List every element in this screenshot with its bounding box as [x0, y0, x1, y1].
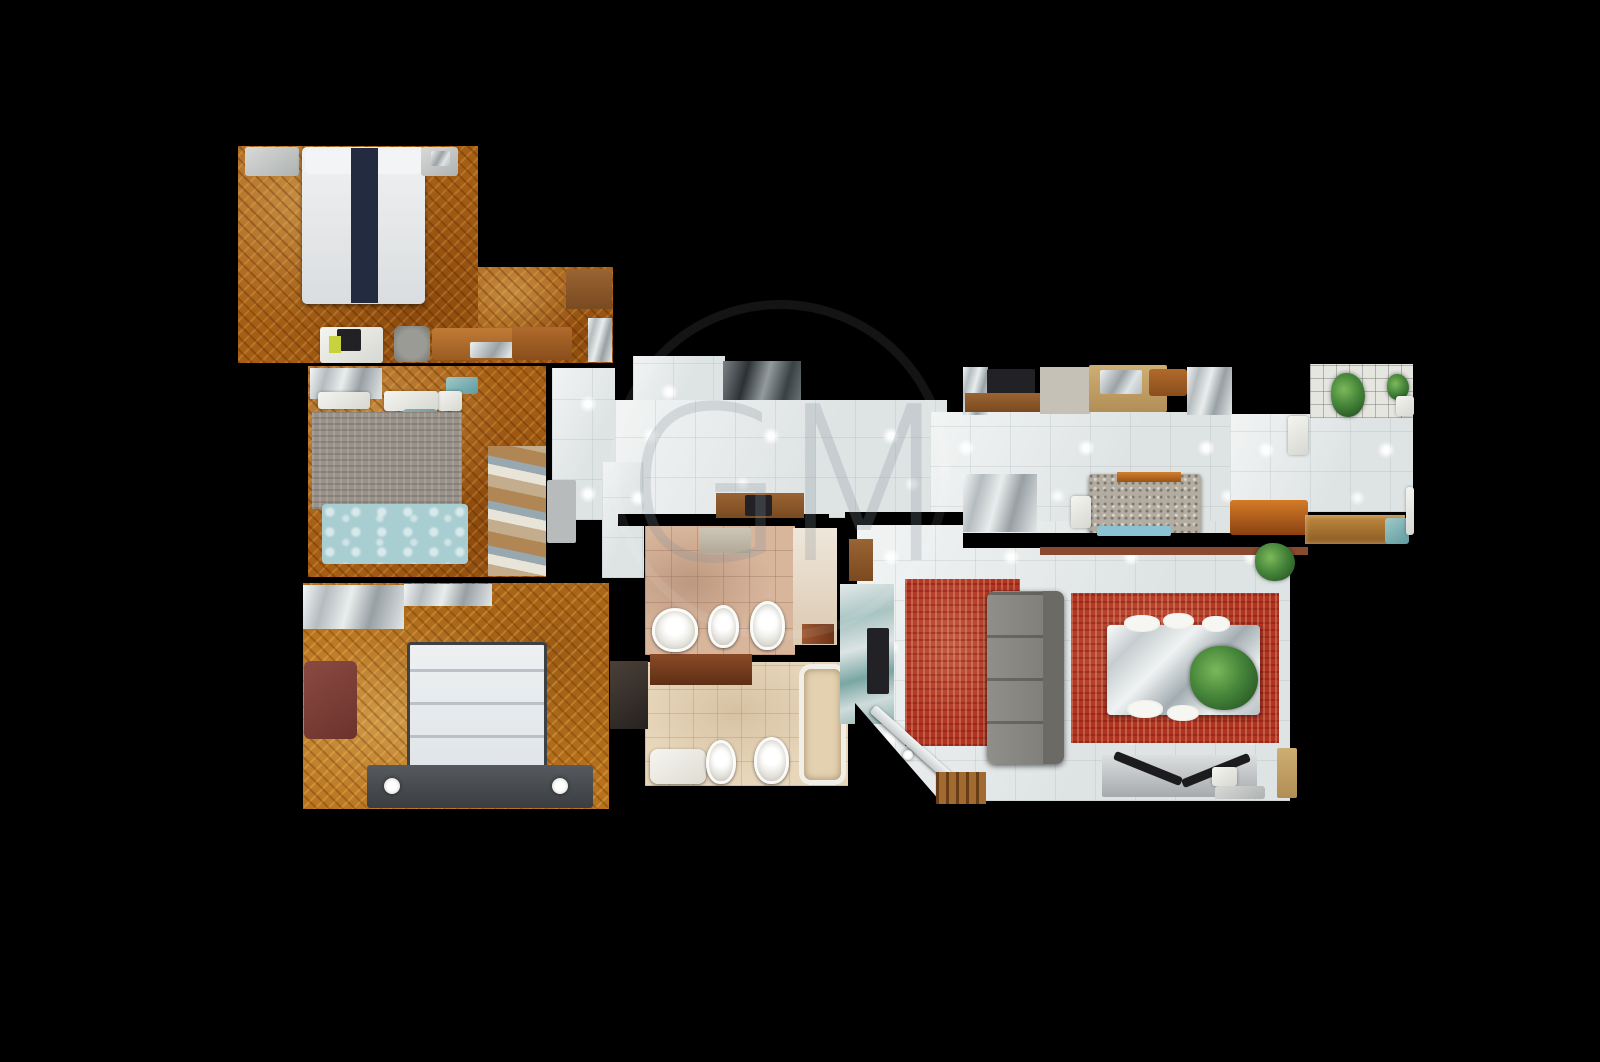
- kitchen-leather-chair: [1149, 369, 1187, 396]
- balcony-plant-large: [1331, 373, 1365, 417]
- floorplan-canvas[interactable]: GM®: [0, 0, 1600, 1062]
- bedroom-1-lamp: [431, 151, 450, 166]
- entry-column: [1288, 416, 1308, 455]
- bathroom-2-bidet: [706, 740, 736, 784]
- kitchen-island-blue-strip: [1097, 526, 1171, 536]
- balcony-box: [1396, 396, 1414, 416]
- bedroom-1-nightstand: [245, 147, 299, 176]
- kitchen-bench-orange: [1230, 500, 1308, 535]
- bedroom-3-lamp-right: [552, 778, 568, 794]
- kitchen-chair-white: [1071, 496, 1091, 528]
- bedroom-1-chair: [394, 326, 430, 362]
- bedroom-3-wardrobe-mirror: [303, 585, 404, 629]
- dining-table-plant: [1190, 646, 1258, 710]
- bedroom-2-bed: [322, 504, 468, 564]
- living-tv: [867, 628, 889, 694]
- kitchen-stools: [1100, 370, 1142, 394]
- bedroom-1-wardrobe-mirror: [588, 318, 612, 362]
- bedroom-1-bed-runner: [351, 148, 378, 303]
- entry-floor[interactable]: [1230, 414, 1413, 512]
- bedroom-1-desk-bag: [329, 336, 341, 353]
- dining-chair-2: [1163, 613, 1194, 629]
- living-wood-steps: [936, 772, 986, 804]
- bedroom-2-desk: [384, 391, 438, 411]
- entry-window-frame: [1406, 487, 1414, 535]
- living-door-knob: [903, 750, 913, 760]
- bedroom-2-cabinet: [438, 391, 462, 411]
- bedroom-3-armchair: [304, 661, 357, 739]
- watermark-registered-icon: ®: [934, 460, 954, 480]
- bedroom-2-closet: [488, 446, 546, 576]
- bedroom-3-lamp-left: [384, 778, 400, 794]
- kitchen-sink-counter: [1187, 367, 1232, 415]
- kitchen-counter-mid: [1040, 367, 1090, 414]
- living-pillar: [1277, 748, 1297, 798]
- bathroom-divider-wall: [650, 654, 752, 685]
- dining-chair-3: [1202, 616, 1230, 632]
- living-sideboard-dish: [1212, 767, 1237, 786]
- kitchen-island: [1089, 474, 1201, 533]
- dining-chair-1: [1124, 615, 1160, 632]
- bedroom-3-wardrobe-mirror-2: [404, 584, 492, 606]
- bedroom-2-dresser: [318, 392, 370, 409]
- bathroom-2-sink: [650, 749, 706, 784]
- dining-chair-5: [1167, 705, 1199, 721]
- hallway-mat: [547, 480, 576, 543]
- screenshot-root: GM®: [0, 0, 1600, 1062]
- living-sofa-back: [1043, 591, 1064, 764]
- living-corner-plant: [1255, 543, 1295, 581]
- bedroom-1-cabinet: [512, 327, 572, 360]
- bedroom-2-rug: [312, 412, 462, 509]
- bathroom-2-counter: [610, 661, 648, 729]
- dining-chair-4: [1127, 700, 1163, 718]
- kitchen-wood-shelf: [965, 393, 1041, 412]
- bathroom-2-toilet: [754, 737, 789, 784]
- watermark-ring: [610, 300, 950, 640]
- kitchen-closet-mirror: [963, 474, 1037, 532]
- living-sideboard-box: [1215, 786, 1265, 799]
- kitchen-island-copper-edge: [1117, 472, 1181, 482]
- bedroom-1-shelf: [566, 269, 612, 309]
- bathroom-2-bathtub: [799, 664, 846, 785]
